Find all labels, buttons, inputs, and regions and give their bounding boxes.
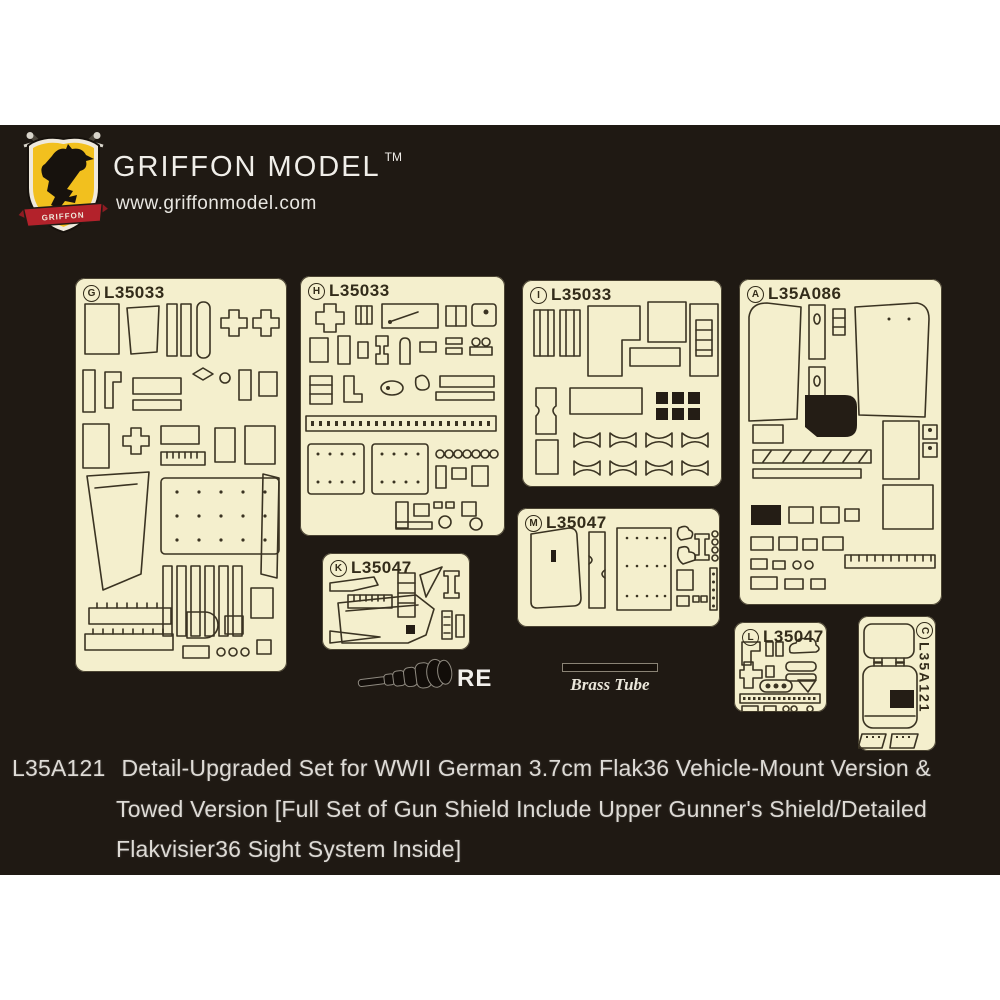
fret-label: M L35047	[525, 513, 607, 533]
fret-label: I L35033	[530, 285, 612, 305]
fret-code: L35A086	[768, 284, 841, 304]
fret-label-vertical: C L35A121	[916, 622, 933, 714]
fret-code: L35033	[329, 281, 390, 301]
description-line-3: Flakvisier36 Sight System Inside]	[116, 836, 461, 863]
fret-code: L35033	[104, 283, 165, 303]
product-code: L35A121	[12, 755, 106, 781]
trademark-symbol: TM	[385, 150, 402, 164]
fret-L-L35047: L L35047	[734, 622, 827, 712]
fret-A-L35A086: A L35A086	[739, 279, 942, 605]
fret-label: G L35033	[83, 283, 165, 303]
fret-K-L35047: K L35047	[322, 553, 470, 650]
etched-parts-art	[300, 276, 505, 536]
fret-label: K L35047	[330, 558, 412, 578]
etched-parts-art	[522, 280, 722, 487]
fret-letter-badge: G	[83, 285, 100, 302]
fret-letter-badge: I	[530, 287, 547, 304]
fret-letter-badge: A	[747, 286, 764, 303]
fret-H-L35033: H L35033	[300, 276, 505, 536]
etched-parts-art	[75, 278, 287, 672]
fret-letter-badge: M	[525, 515, 542, 532]
fret-label: H L35033	[308, 281, 390, 301]
fret-label: A L35A086	[747, 284, 841, 304]
fret-code: L35A121	[917, 642, 933, 714]
etched-parts-art	[739, 279, 942, 605]
fret-code: L35047	[763, 627, 824, 647]
griffon-shield-logo-icon: GRIFFON	[16, 131, 111, 235]
fret-C-L35A121: C L35A121	[858, 616, 936, 751]
brass-tube-label: Brass Tube	[552, 675, 668, 695]
brass-tube	[562, 663, 658, 672]
fret-letter-badge: C	[916, 622, 933, 639]
fret-letter-badge: K	[330, 560, 347, 577]
fret-I-L35033: I L35033	[522, 280, 722, 487]
barrel-label: RE	[457, 665, 492, 693]
brass-barrel-icon	[356, 655, 456, 699]
fret-code: L35047	[351, 558, 412, 578]
fret-code: L35033	[551, 285, 612, 305]
fret-M-L35047: M L35047	[517, 508, 720, 627]
black-photo-panel: GRIFFON GRIFFON MODELTM www.griffonmodel…	[0, 125, 1000, 875]
fret-label: L L35047	[742, 627, 824, 647]
description-line-2: Towed Version [Full Set of Gun Shield In…	[116, 796, 927, 823]
fret-code: L35047	[546, 513, 607, 533]
fret-G-L35033: G L35033	[75, 278, 287, 672]
product-page: GRIFFON GRIFFON MODELTM www.griffonmodel…	[0, 0, 1000, 1000]
fret-letter-badge: L	[742, 629, 759, 646]
fret-letter-badge: H	[308, 283, 325, 300]
brand-name: GRIFFON MODELTM	[113, 151, 398, 184]
brand-website: www.griffonmodel.com	[116, 193, 317, 215]
description-line-1: L35A121Detail-Upgraded Set for WWII Germ…	[12, 755, 931, 782]
